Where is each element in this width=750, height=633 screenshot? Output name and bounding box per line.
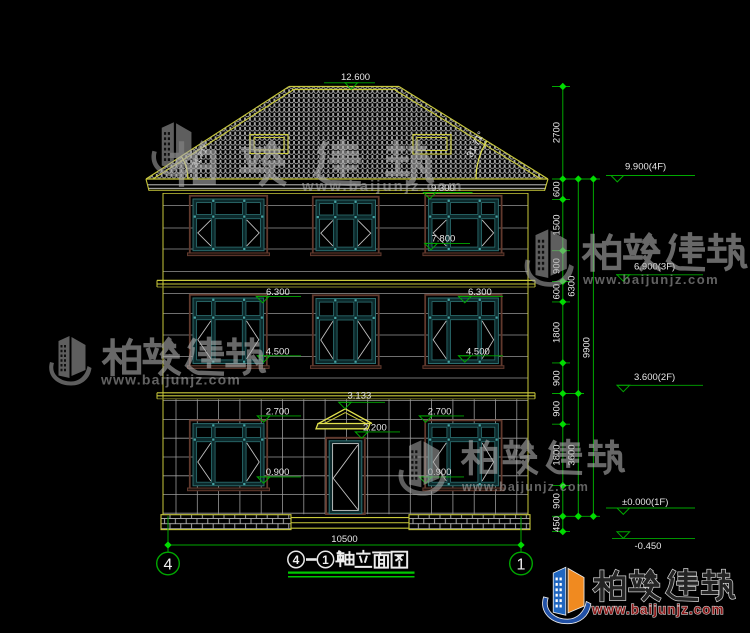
svg-text:4.500: 4.500 xyxy=(266,346,290,357)
svg-text:www.baijunjz.com: www.baijunjz.com xyxy=(461,480,589,494)
svg-text:www.baijunjz.com: www.baijunjz.com xyxy=(301,178,463,195)
svg-text:2700: 2700 xyxy=(552,122,563,143)
svg-text:900: 900 xyxy=(552,493,563,509)
svg-text:10500: 10500 xyxy=(331,534,357,545)
svg-text:www.baijunjz.com: www.baijunjz.com xyxy=(591,602,725,617)
svg-text:1800: 1800 xyxy=(552,322,563,343)
svg-text:1: 1 xyxy=(322,553,329,567)
svg-text:3.600(2F): 3.600(2F) xyxy=(634,372,675,383)
svg-text:12.600: 12.600 xyxy=(341,72,370,83)
svg-text:6.300: 6.300 xyxy=(266,287,290,298)
svg-text:4.500: 4.500 xyxy=(466,346,490,357)
svg-text:600: 600 xyxy=(552,181,563,197)
svg-text:0.900: 0.900 xyxy=(266,467,290,478)
svg-text:7.800: 7.800 xyxy=(432,234,456,245)
svg-text:2.700: 2.700 xyxy=(428,407,452,418)
svg-text:2.700: 2.700 xyxy=(266,407,290,418)
svg-text:www.baijunjz.com: www.baijunjz.com xyxy=(100,372,241,388)
svg-text:900: 900 xyxy=(552,401,563,417)
svg-text:900: 900 xyxy=(552,370,563,386)
svg-text:9900: 9900 xyxy=(582,337,593,358)
svg-text:9.900(4F): 9.900(4F) xyxy=(625,162,666,173)
svg-text:1: 1 xyxy=(517,557,526,574)
svg-text:2.200: 2.200 xyxy=(363,422,387,433)
svg-text:450: 450 xyxy=(552,516,563,532)
svg-text:4: 4 xyxy=(164,557,173,574)
svg-text:-0.450: -0.450 xyxy=(635,541,662,552)
svg-text:4: 4 xyxy=(293,553,300,567)
svg-text:3.133: 3.133 xyxy=(348,391,372,402)
svg-text:www.baijunjz.com: www.baijunjz.com xyxy=(582,272,719,287)
svg-text:±0.000(1F): ±0.000(1F) xyxy=(622,497,668,508)
svg-text:6.300: 6.300 xyxy=(468,287,492,298)
